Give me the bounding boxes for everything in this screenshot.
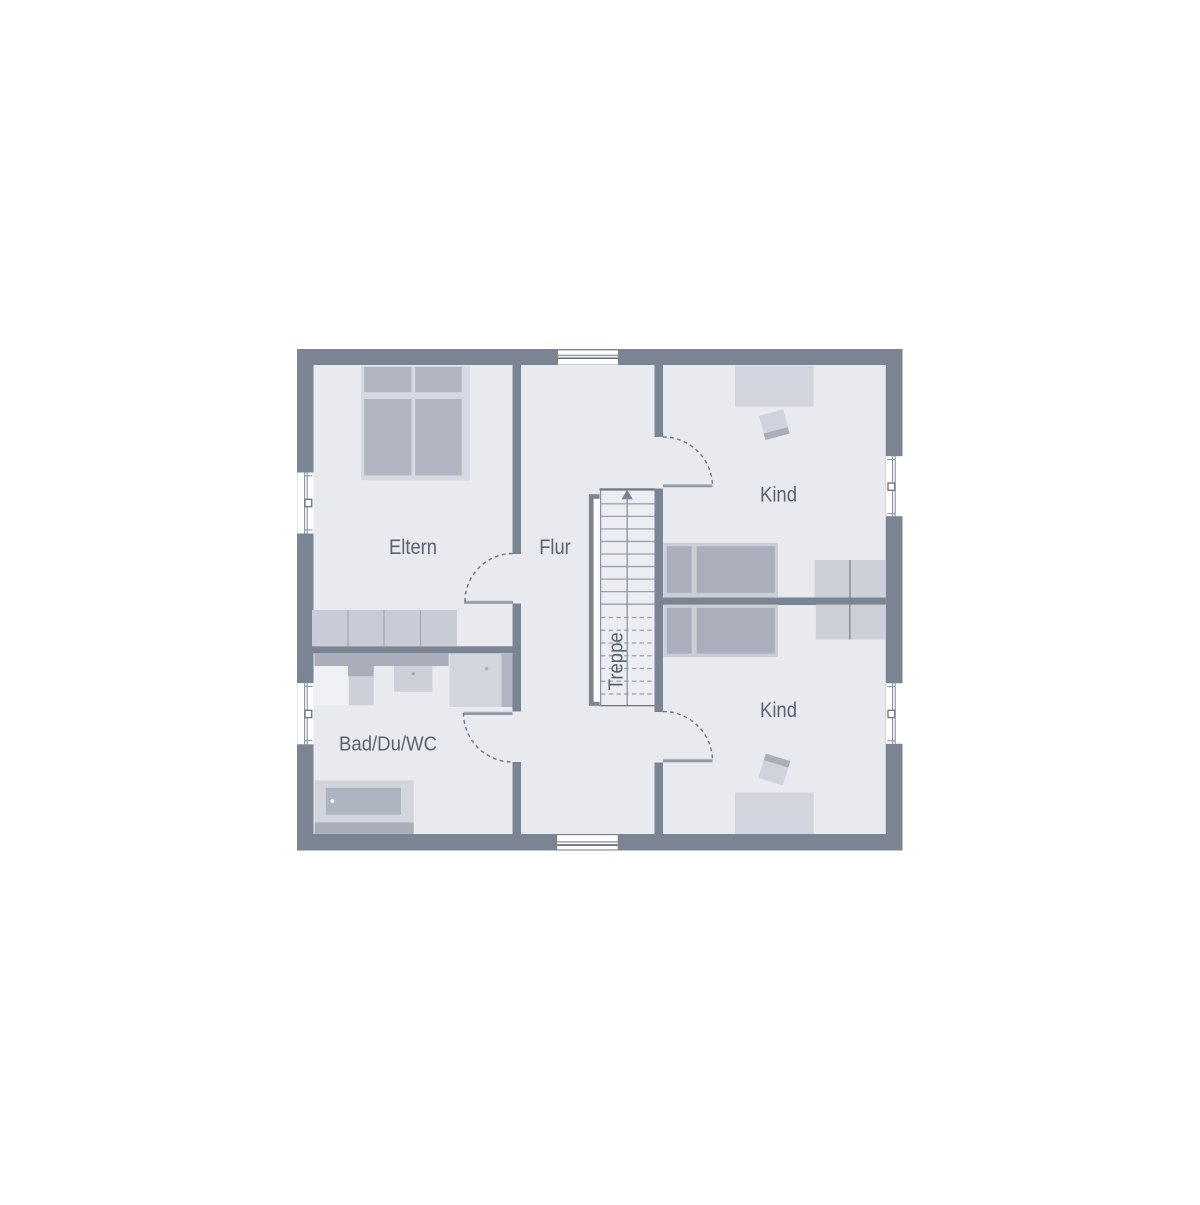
svg-text:Flur: Flur (539, 536, 571, 559)
svg-text:Treppe: Treppe (605, 632, 627, 690)
svg-text:Kind: Kind (760, 698, 797, 722)
svg-text:Eltern: Eltern (389, 536, 437, 559)
svg-text:Bad/Du/WC: Bad/Du/WC (339, 733, 437, 756)
svg-text:Kind: Kind (760, 483, 797, 507)
